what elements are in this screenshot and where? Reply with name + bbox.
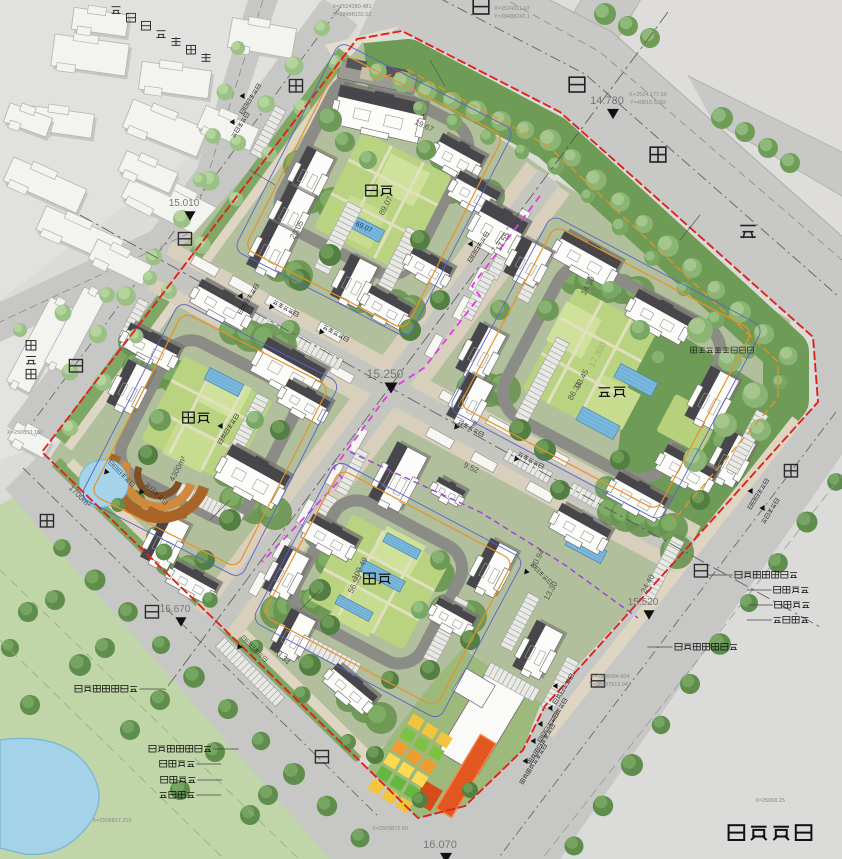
svg-text:X=250833.157: X=250833.157 [7,430,43,436]
svg-text:X=25068.25: X=25068.25 [755,798,785,804]
svg-text:X=2505817.215: X=2505817.215 [93,818,132,824]
svg-text:Y=48816.5082: Y=48816.5082 [630,100,666,106]
svg-text:X=2508004.604: X=2508004.604 [591,674,630,680]
svg-text:15.010: 15.010 [169,198,200,209]
svg-text:X=2524311.07: X=2524311.07 [494,6,530,12]
svg-text:Y=38487912.047: Y=38487912.047 [589,682,631,688]
svg-text:Y=38488243.1: Y=38488243.1 [494,14,530,20]
svg-text:16.070: 16.070 [423,839,457,851]
svg-text:15.250: 15.250 [367,367,404,381]
svg-text:Y=38488132.02: Y=38488132.02 [333,12,372,18]
svg-text:X=2509872.60: X=2509872.60 [372,826,408,832]
svg-text:15.670: 15.670 [160,604,191,615]
svg-text:15.520: 15.520 [628,597,659,608]
svg-text:14.780: 14.780 [590,95,624,107]
svg-text:K+2524.177.59: K+2524.177.59 [629,92,666,98]
svg-text:X=2524280.481: X=2524280.481 [333,4,372,10]
